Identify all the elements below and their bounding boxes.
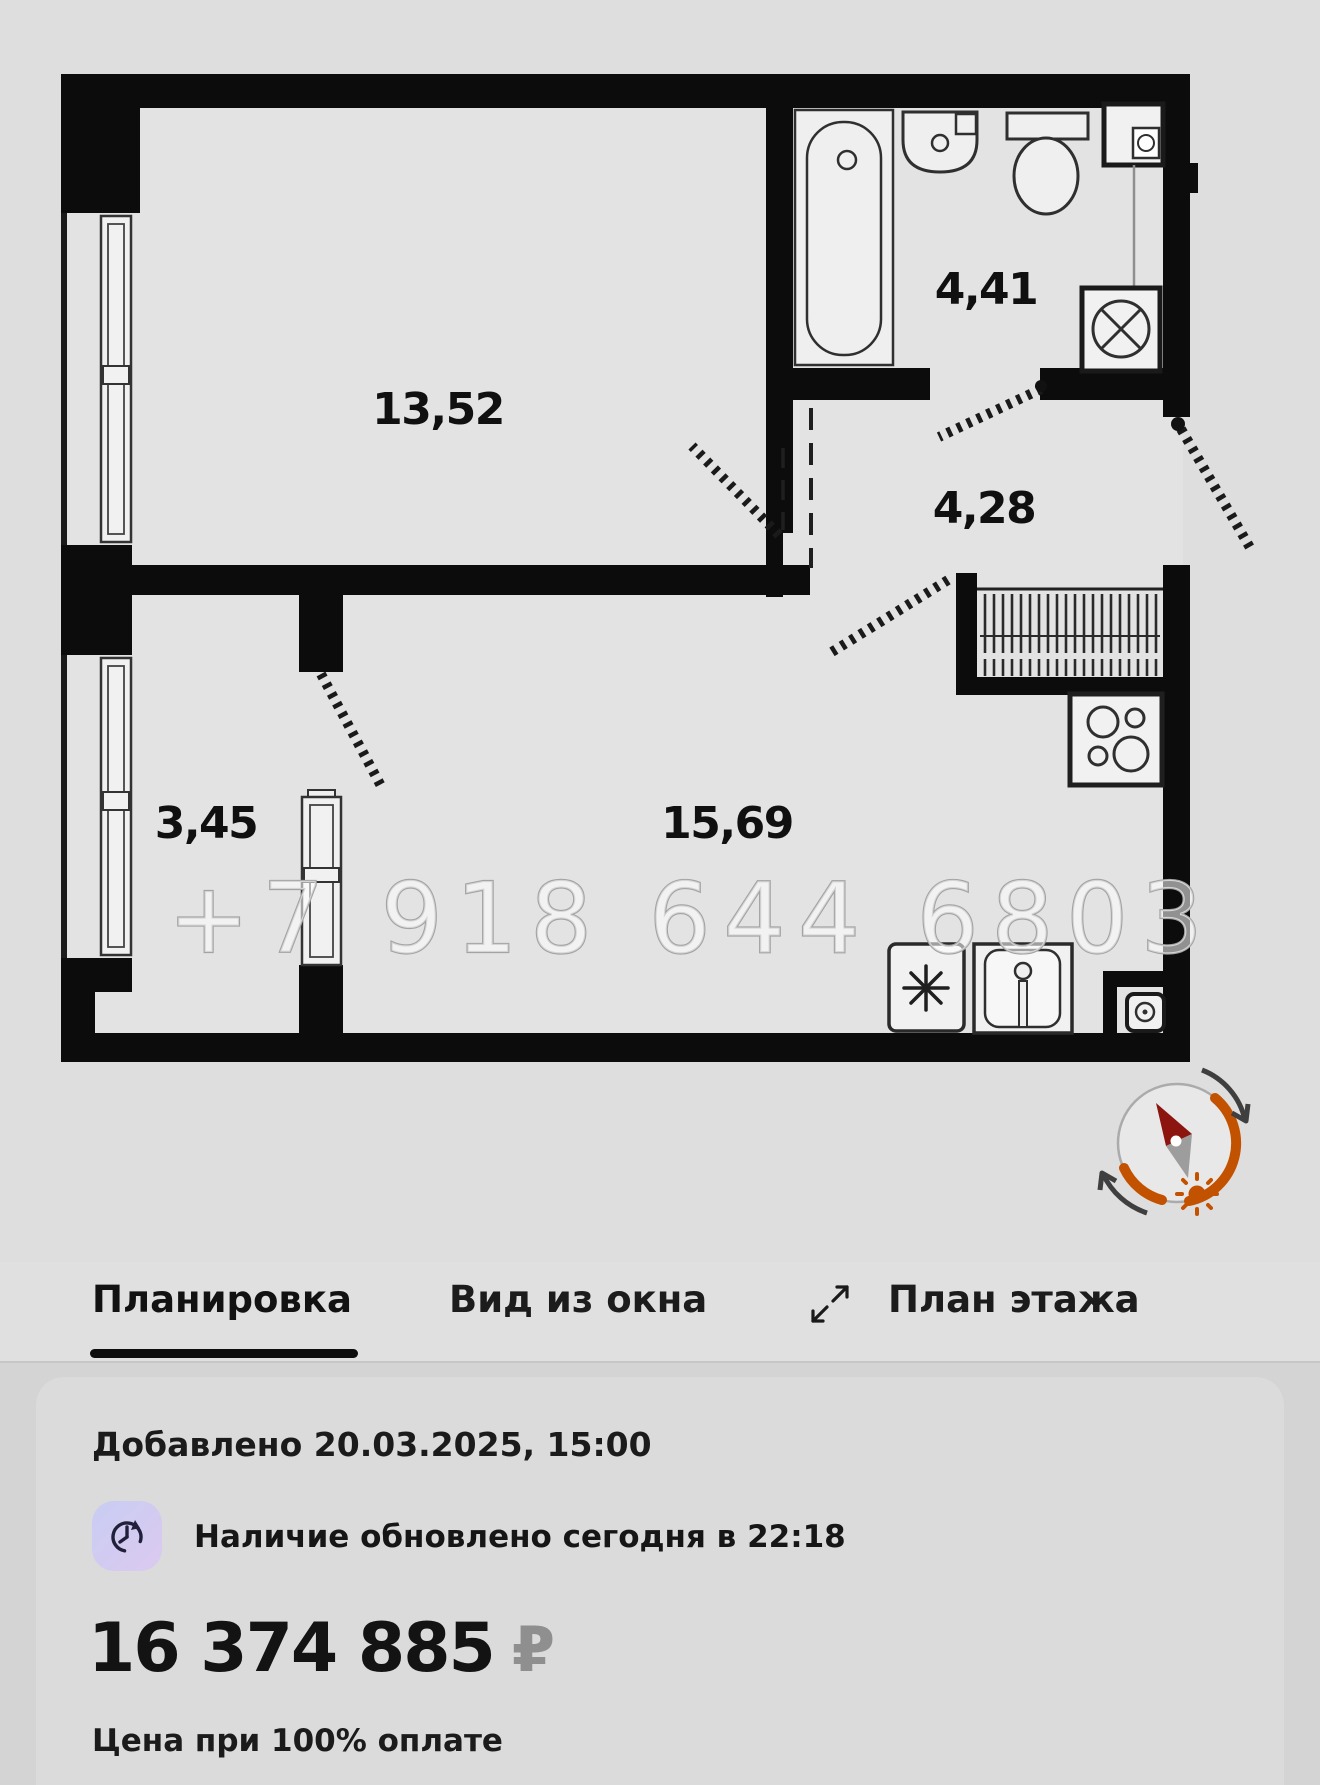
bathtub-icon bbox=[795, 110, 893, 365]
room-label-4-28: 4,28 bbox=[933, 483, 1036, 534]
door-hinge-dot bbox=[1035, 380, 1047, 392]
price-value: 16 374 885 bbox=[88, 1609, 494, 1688]
bathroom-sink-icon bbox=[903, 112, 977, 172]
stove-icon bbox=[1070, 694, 1162, 785]
sun-icon bbox=[1177, 1174, 1217, 1214]
corner-vent-icon bbox=[1127, 994, 1164, 1031]
tab-vid-iz-okna[interactable]: Вид из окна bbox=[449, 1278, 707, 1321]
room-label-13-52: 13,52 bbox=[372, 384, 504, 435]
price-note: Цена при 100% оплате bbox=[92, 1723, 503, 1759]
room-label-4-41: 4,41 bbox=[935, 264, 1038, 315]
entrance-hinge-dot bbox=[1171, 417, 1185, 431]
tab-plan-etazha[interactable]: План этажа bbox=[888, 1278, 1140, 1321]
washing-machine-icon bbox=[1082, 288, 1160, 371]
expand-diagonal-icon[interactable] bbox=[806, 1280, 854, 1328]
room-label-3-45: 3,45 bbox=[155, 798, 258, 849]
availability-clock-icon bbox=[92, 1501, 162, 1571]
availability-text: Наличие обновлено сегодня в 22:18 bbox=[194, 1519, 846, 1555]
media-tab-bar: Планировка Вид из окна План этажа bbox=[0, 1262, 1320, 1363]
added-date: Добавлено 20.03.2025, 15:00 bbox=[92, 1425, 652, 1464]
wardrobe-icon bbox=[977, 589, 1163, 676]
compass-icon bbox=[1100, 1070, 1248, 1214]
listing-info-card: Добавлено 20.03.2025, 15:00 Наличие обно… bbox=[36, 1377, 1284, 1785]
active-tab-underline bbox=[90, 1349, 358, 1358]
tab-planirovka[interactable]: Планировка bbox=[92, 1278, 352, 1321]
price-row: 16 374 885₽ bbox=[88, 1609, 555, 1688]
room-label-15-69: 15,69 bbox=[661, 798, 793, 849]
floor-plan-image[interactable]: 13,52 4,41 4,28 3,45 15,69 +7 918 644 68… bbox=[0, 0, 1320, 1240]
ruble-sign: ₽ bbox=[512, 1613, 555, 1686]
watermark: +7 918 644 6803 bbox=[168, 862, 1216, 975]
